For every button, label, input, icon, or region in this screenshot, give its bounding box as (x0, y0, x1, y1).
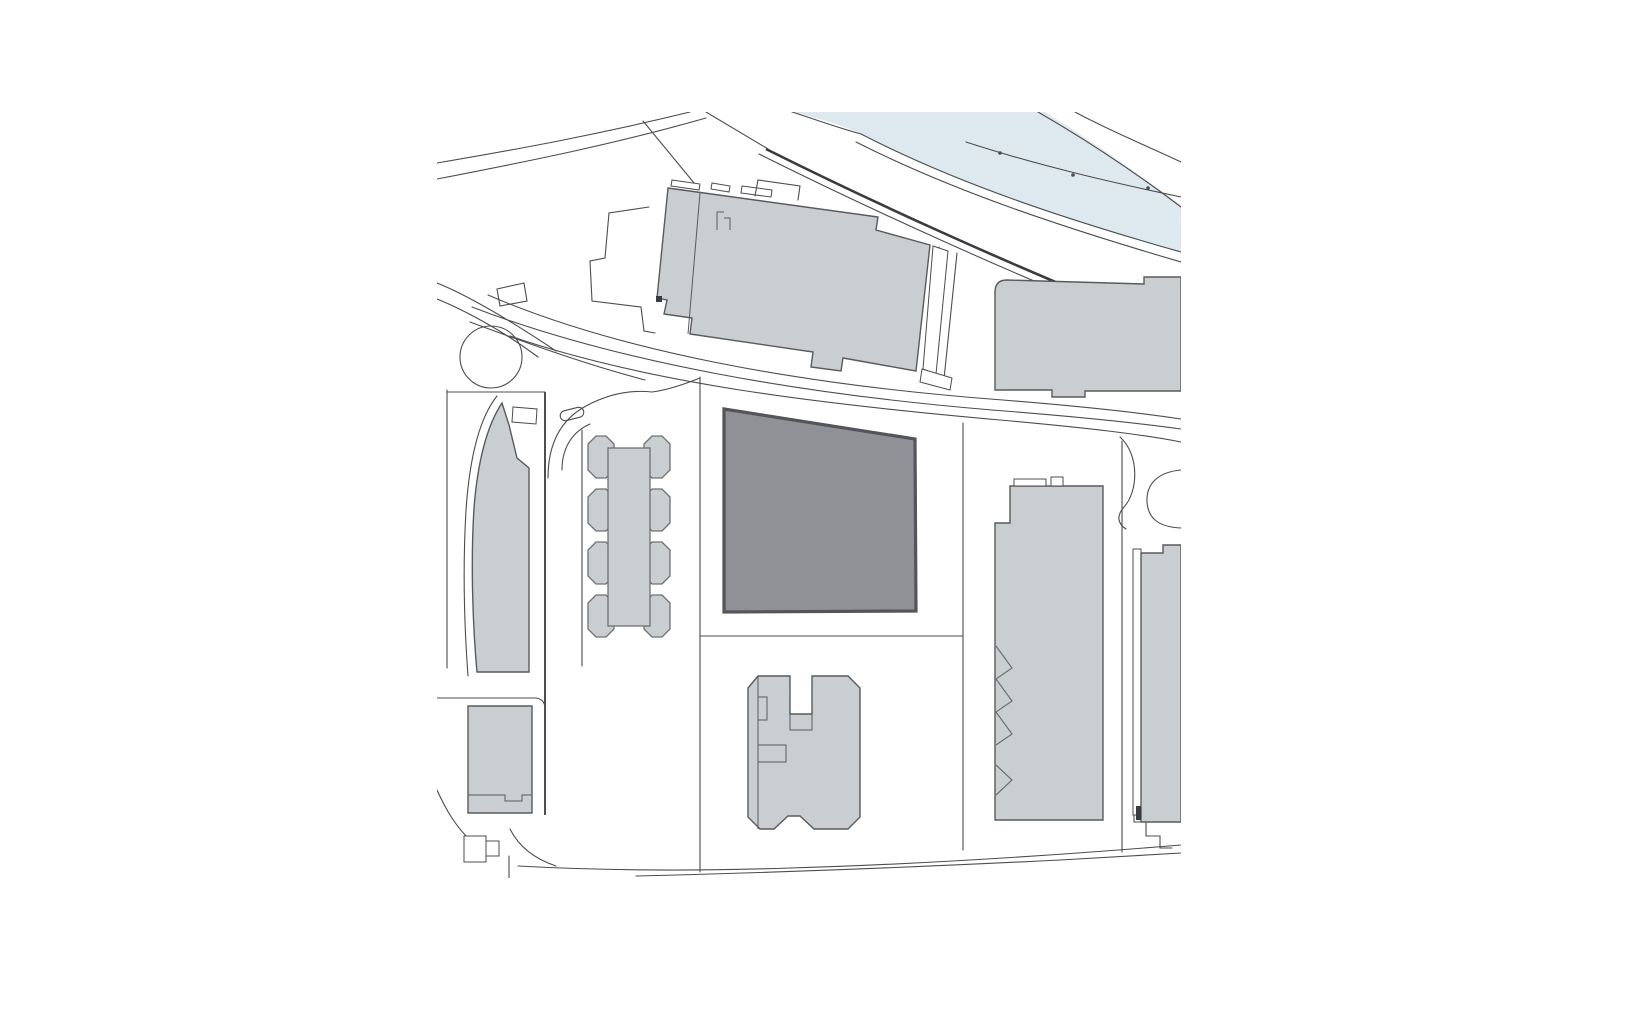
building-top-right (995, 277, 1181, 397)
roundabout (460, 326, 522, 388)
far-right-strip (1133, 549, 1141, 815)
survey-dot (1146, 186, 1150, 190)
footway-scroll-2 (1147, 470, 1181, 528)
utility-box-1 (464, 836, 486, 862)
site-plan-drawing (0, 0, 1640, 1020)
building-far-right (1133, 545, 1181, 822)
building-bay-block (588, 436, 670, 637)
plot-outline-small (497, 283, 527, 306)
bay-block-core (608, 448, 650, 626)
footway-scroll-1 (1119, 437, 1135, 529)
bottom-road-line-1 (518, 845, 1181, 870)
survey-dot (1071, 173, 1075, 177)
survey-dot (998, 151, 1002, 155)
driveway-curve-2 (562, 424, 590, 470)
bottom-road-line-2 (636, 853, 1181, 876)
site-plan-canvas (0, 0, 1640, 1020)
roof-tab-wide (1014, 479, 1046, 486)
building-sail (472, 403, 529, 672)
boundary-spur (643, 121, 699, 189)
roof-tab-small (1051, 477, 1063, 486)
utility-box-2 (486, 841, 499, 856)
driveway-curve-3 (652, 378, 700, 392)
building-right-tall (995, 477, 1103, 820)
rooftop-tab-2 (711, 183, 730, 192)
sail-canopy (512, 407, 537, 424)
forecourt-steps (590, 207, 655, 333)
bottom-left-edge-curve (437, 790, 466, 836)
street-fork-1 (437, 283, 556, 351)
bottom-left-curve (510, 829, 556, 866)
site-building (724, 409, 916, 612)
building-bottom-centre (748, 676, 860, 829)
building-bottom-centre-outline (748, 676, 860, 829)
bridge-line (706, 112, 768, 149)
far-right-door-mark (1136, 806, 1141, 820)
site (724, 409, 916, 612)
road-curve-topleft-1 (437, 112, 690, 163)
building-right-tall-outline (995, 486, 1103, 820)
building-far-right-outline (1141, 545, 1181, 822)
building-top-corner-mark (656, 296, 662, 302)
